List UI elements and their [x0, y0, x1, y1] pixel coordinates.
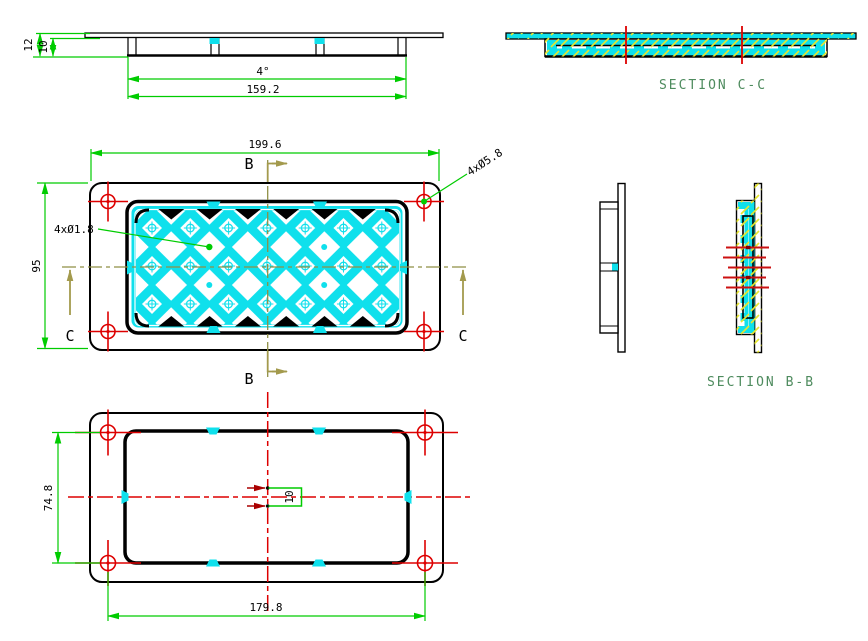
view-side-profile — [600, 184, 625, 353]
cut-label-b-bottom: B — [244, 370, 253, 388]
technical-drawing: 12 10 4° 159.2 SECTION C-C — [0, 0, 868, 641]
leader-dot-small-hole — [206, 244, 212, 250]
view-section-bb: SECTION B-B — [707, 184, 815, 391]
leader-dot-mount-hole — [421, 199, 427, 205]
flange-profile — [85, 33, 443, 38]
snap-clip — [612, 264, 618, 271]
hatch-body — [545, 39, 827, 57]
side-flange — [618, 184, 625, 353]
dim-height-overall: 12 — [22, 38, 35, 51]
view-section-cc: SECTION C-C — [506, 26, 856, 93]
callout-mount-holes: 4xØ5.8 — [465, 146, 505, 179]
cut-label-b-top: B — [244, 155, 253, 173]
dim-width-inner: 159.2 — [246, 83, 279, 96]
snap-clip — [315, 38, 325, 44]
section-bb-pin — [746, 276, 751, 279]
view-top-side: 12 10 4° 159.2 — [22, 33, 443, 99]
dim-hole-pitch-horizontal: 179.8 — [249, 601, 282, 614]
hatch-flange — [506, 33, 856, 39]
body-ribs — [128, 38, 406, 55]
dim-draft-angle: 4° — [256, 65, 269, 78]
section-bb-label: SECTION B-B — [707, 375, 815, 390]
section-bb-pin — [746, 246, 751, 249]
dim-hole-pitch-vertical: 74.8 — [42, 485, 55, 512]
snap-clip — [210, 38, 220, 44]
view-front: 199.6 95 4xØ1.8 4xØ5.8 B B C C — [30, 138, 505, 388]
dim-height-overall-front: 95 — [30, 259, 43, 272]
cut-label-c-left: C — [65, 327, 74, 345]
dim-height-inner: 10 — [37, 40, 50, 53]
view-back: 10 74.8 179.8 — [42, 392, 470, 621]
dim-center-tab: 10 — [283, 490, 296, 503]
section-cc-label: SECTION C-C — [659, 78, 767, 93]
cut-label-c-right: C — [458, 327, 467, 345]
callout-small-holes: 4xØ1.8 — [54, 223, 94, 236]
dim-width-overall: 199.6 — [248, 138, 281, 151]
cad-drawing-sheet: 12 10 4° 159.2 SECTION C-C — [0, 0, 868, 641]
